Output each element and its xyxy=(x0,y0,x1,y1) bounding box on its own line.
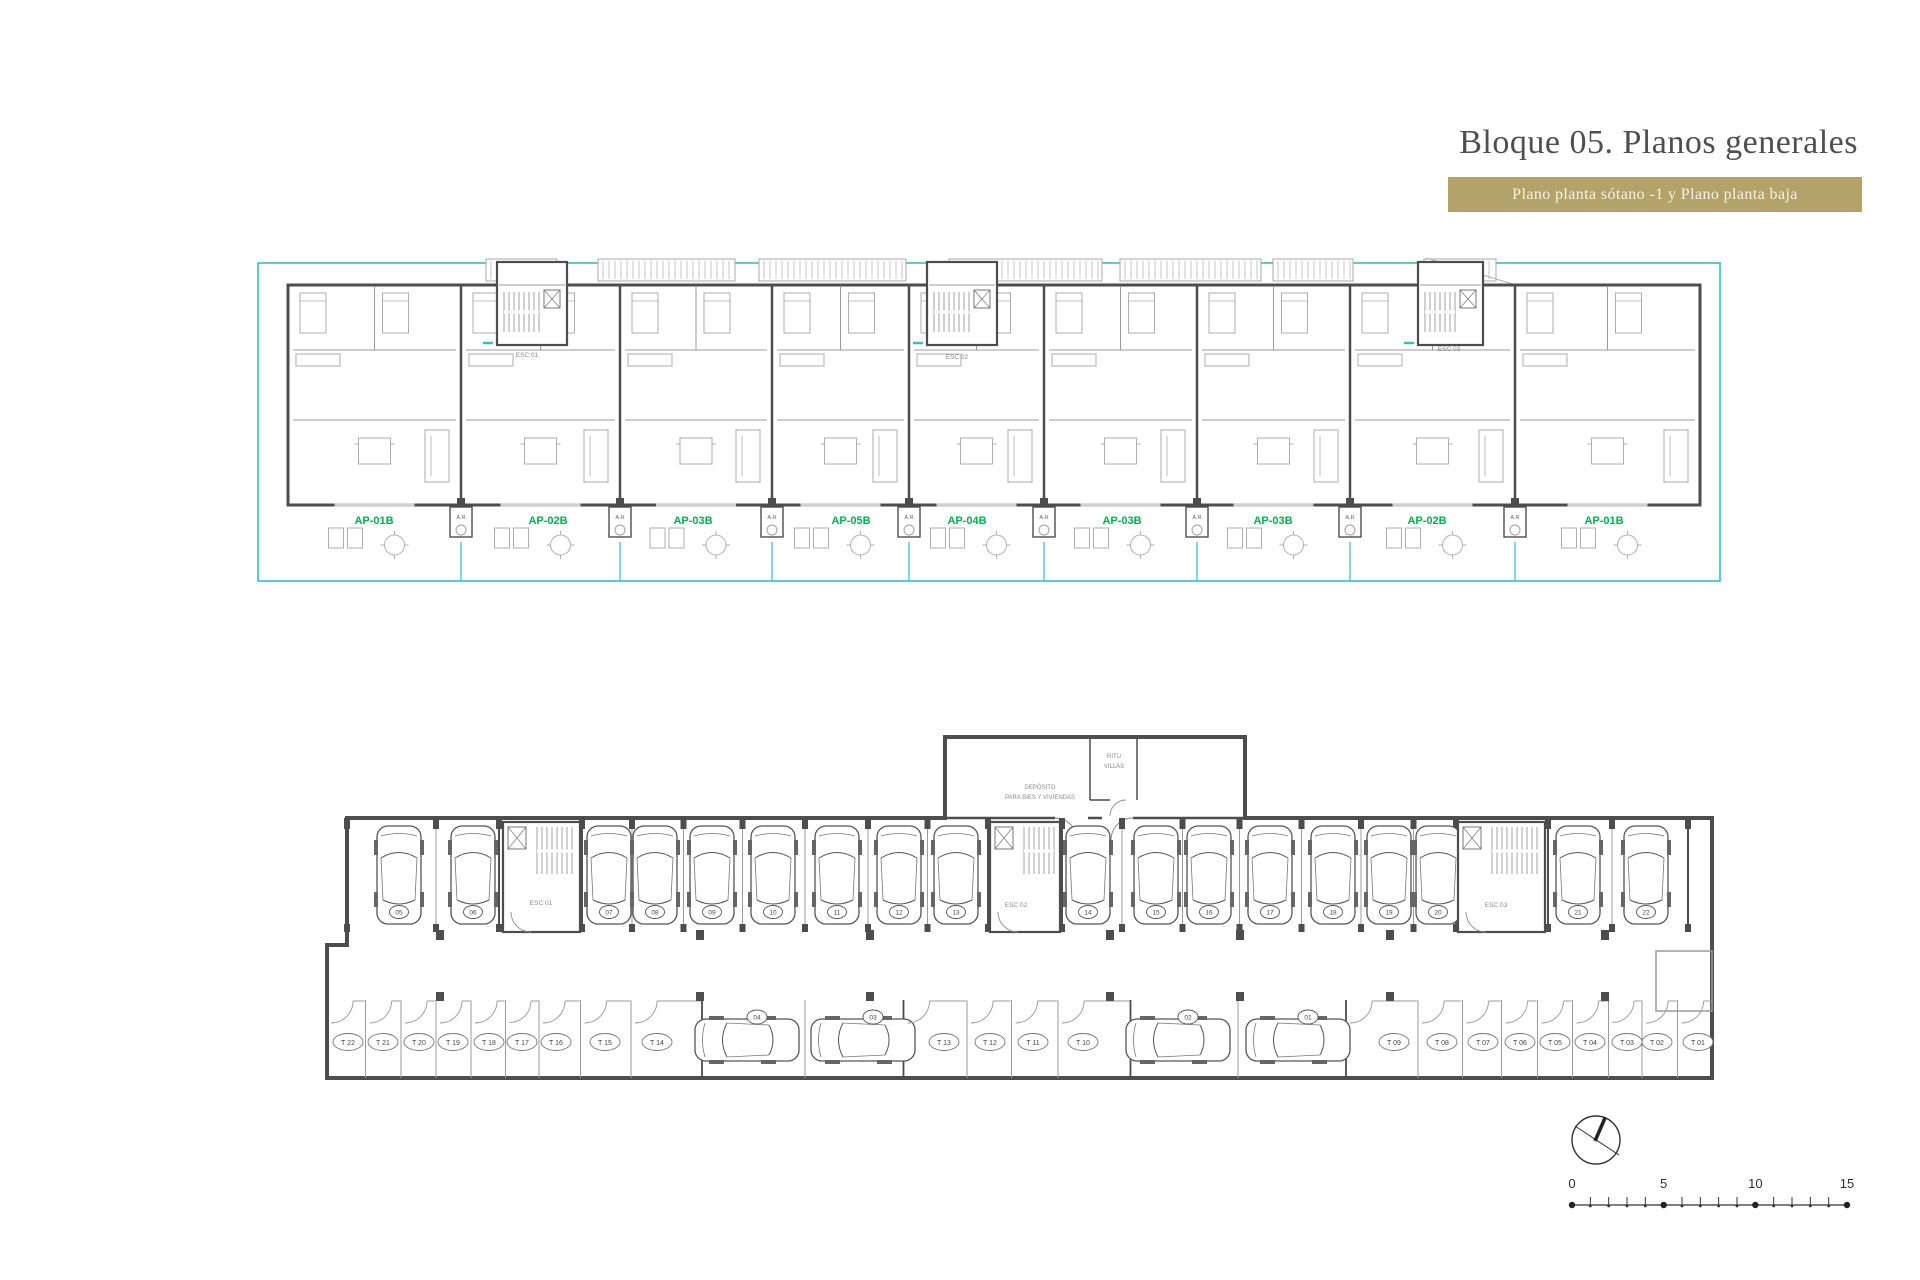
stair-label: ESC 03 xyxy=(1438,346,1461,353)
apartment-label: AP-03B xyxy=(673,515,712,527)
pergola-stripes xyxy=(598,259,735,281)
apartment-label: AP-03B xyxy=(1102,515,1141,527)
car-number: 12 xyxy=(895,910,903,917)
car-number: 08 xyxy=(651,910,659,917)
car-number: 02 xyxy=(1184,1015,1192,1022)
north-arrow-icon xyxy=(1572,1116,1620,1164)
apartment-label: AP-01B xyxy=(354,515,393,527)
apartment-label: AP-02B xyxy=(1407,515,1446,527)
utility-label: A.R xyxy=(904,515,913,521)
pergola-stripes xyxy=(759,259,906,281)
storage-label: T 05 xyxy=(1548,1040,1562,1047)
car-icon xyxy=(811,1016,915,1064)
car-number: 04 xyxy=(753,1015,761,1022)
room-label: RITU xyxy=(1107,754,1121,760)
storage-label: T 06 xyxy=(1513,1040,1527,1047)
storage-label: T 13 xyxy=(937,1040,951,1047)
apartment-label: AP-01B xyxy=(1584,515,1623,527)
storage-label: T 02 xyxy=(1650,1040,1664,1047)
car-number: 03 xyxy=(869,1015,877,1022)
scale-label: 15 xyxy=(1840,1176,1854,1191)
car-number: 18 xyxy=(1329,910,1337,917)
stair-label: ESC 02 xyxy=(1005,902,1028,909)
basement-plan: DEPÓSITOPARA BIES Y VIVIENDASRITUVILLAS0… xyxy=(327,737,1713,1078)
car-number: 01 xyxy=(1304,1015,1312,1022)
car-number: 17 xyxy=(1266,910,1274,917)
utility-label: A.R xyxy=(1510,515,1519,521)
car-number: 06 xyxy=(469,910,477,917)
storage-label: T 16 xyxy=(549,1040,563,1047)
storage-label: T 10 xyxy=(1076,1040,1090,1047)
car-number: 20 xyxy=(1434,910,1442,917)
room-label: DEPÓSITO xyxy=(1025,784,1056,791)
car-number: 09 xyxy=(708,910,716,917)
storage-label: T 03 xyxy=(1620,1040,1634,1047)
storage-label: T 21 xyxy=(376,1040,390,1047)
utility-label: A.R xyxy=(767,515,776,521)
stair-core: ESC 01 xyxy=(503,822,580,932)
room-label: VILLAS xyxy=(1104,764,1124,770)
utility-label: A.R xyxy=(1039,515,1048,521)
pergola-stripes xyxy=(1273,259,1353,281)
storage-label: T 11 xyxy=(1026,1040,1039,1047)
apartment-label: AP-03B xyxy=(1253,515,1292,527)
scale-label: 10 xyxy=(1748,1176,1762,1191)
scale-bar: 051015 xyxy=(1568,1176,1854,1208)
car-number: 21 xyxy=(1574,910,1582,917)
car-number: 11 xyxy=(834,910,841,917)
car-number: 05 xyxy=(395,910,403,917)
pergola-stripes xyxy=(1120,259,1261,281)
storage-label: T 12 xyxy=(983,1040,997,1047)
stair-label: ESC 01 xyxy=(516,352,539,359)
apartment-label: AP-02B xyxy=(528,515,567,527)
car-number: 13 xyxy=(952,910,960,917)
stair-label: ESC 01 xyxy=(530,900,553,907)
car-number: 16 xyxy=(1205,910,1213,917)
car-number: 19 xyxy=(1385,910,1393,917)
car-number: 10 xyxy=(769,910,777,917)
storage-label: T 04 xyxy=(1583,1040,1597,1047)
car-icon xyxy=(695,1016,799,1064)
car-number: 07 xyxy=(605,910,613,917)
car-number: 22 xyxy=(1642,910,1650,917)
scale-label: 5 xyxy=(1660,1176,1667,1191)
car-number: 15 xyxy=(1152,910,1160,917)
utility-label: A.R xyxy=(1345,515,1354,521)
room-label: PARA BIES Y VIVIENDAS xyxy=(1005,795,1075,801)
storage-label: T 18 xyxy=(482,1040,496,1047)
apartment-label: AP-04B xyxy=(947,515,986,527)
stair-label: ESC 02 xyxy=(946,354,969,361)
floor-plans-canvas: AP-01BAP-02BAP-03BAP-05BAP-04BAP-03BAP-0… xyxy=(0,0,1920,1280)
storage-label: T 08 xyxy=(1435,1040,1449,1047)
storage-label: T 15 xyxy=(598,1040,612,1047)
storage-label: T 01 xyxy=(1691,1040,1705,1047)
storage-label: T 17 xyxy=(515,1040,529,1047)
car-number: 14 xyxy=(1084,910,1092,917)
upper-floor-plan: AP-01BAP-02BAP-03BAP-05BAP-04BAP-03BAP-0… xyxy=(258,258,1720,581)
storage-label: T 07 xyxy=(1476,1040,1490,1047)
storage-label: T 20 xyxy=(412,1040,426,1047)
storage-label: T 14 xyxy=(650,1040,664,1047)
storage-label: T 22 xyxy=(341,1040,355,1047)
stair-core: ESC 02 xyxy=(990,822,1060,932)
utility-label: A.R xyxy=(615,515,624,521)
storage-label: T 09 xyxy=(1387,1040,1401,1047)
apartment-label: AP-05B xyxy=(831,515,870,527)
scale-label: 0 xyxy=(1568,1176,1575,1191)
storage-label: T 19 xyxy=(446,1040,460,1047)
plan-sheet: Bloque 05. Planos generales Plano planta… xyxy=(0,0,1920,1280)
stair-core: ESC 03 xyxy=(1458,822,1545,932)
car-icon xyxy=(1246,1016,1350,1064)
utility-label: A.R xyxy=(1192,515,1201,521)
car-icon xyxy=(1126,1016,1230,1064)
utility-label: A.R xyxy=(456,515,465,521)
stair-label: ESC 03 xyxy=(1485,902,1508,909)
